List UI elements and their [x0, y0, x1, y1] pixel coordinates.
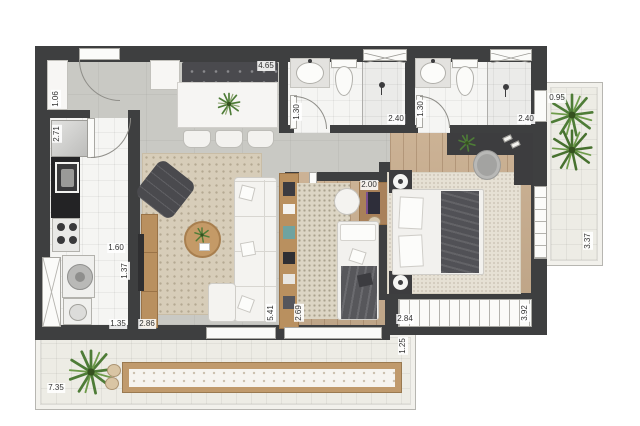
dim-living-depth: 5.41: [266, 304, 276, 322]
washer-door: [75, 272, 85, 282]
balcony-plant-icon: [551, 128, 593, 172]
closet-x-icon: [43, 258, 60, 326]
sofa-pillow: [240, 241, 256, 257]
office-bed: [337, 221, 379, 320]
burner: [57, 236, 65, 244]
office-bed-cushion: [348, 248, 366, 265]
dim-bedroom-window: 2.84: [396, 314, 414, 324]
dim-balcony-bottom-depth: 1.25: [398, 337, 408, 355]
dim-bath1-door: 1.30: [292, 103, 302, 121]
bath2-sink: [420, 62, 446, 84]
washing-machine: [62, 255, 95, 298]
bedroom-balcony-sliding-door: [534, 186, 547, 259]
wall-kitchen-living: [128, 110, 140, 325]
wall-bath-bottom-3: [450, 125, 547, 133]
dim-kitchen-width: 1.60: [107, 243, 125, 253]
living-sliding-door: [206, 327, 276, 339]
dim-kitchen-depth: 1.37: [120, 262, 130, 280]
books: [283, 274, 295, 284]
office-sliding-door: [284, 327, 382, 339]
laundry-sink: [63, 298, 92, 325]
dim-dining-width: 4.65: [257, 61, 275, 71]
dim-office-width: 2.69: [294, 304, 304, 322]
dim-bath2-shower: 2.40: [517, 114, 535, 124]
dining-chair: [215, 130, 243, 148]
balcony-bench: [122, 362, 402, 393]
bath2-window: [490, 49, 532, 61]
dim-living-width: 2.86: [138, 319, 156, 329]
burner: [57, 223, 65, 231]
wall-bath-bottom-2: [330, 125, 418, 133]
dining-plant-icon: [217, 92, 241, 116]
balcony-right-window: [534, 90, 547, 122]
books: [283, 252, 295, 264]
office-monitor: [366, 192, 380, 214]
sink-basin: [61, 169, 74, 187]
kitchen-sink: [55, 162, 79, 193]
wall-bath1-left: [279, 46, 288, 133]
entry-door: [79, 48, 120, 60]
bed-pillow: [398, 196, 424, 229]
dim-balcony-right-width: 0.95: [548, 93, 566, 103]
coffee-table-plant-icon: [194, 227, 210, 243]
dim-bath2-door: 1.30: [416, 100, 426, 118]
window-x-icon: [364, 53, 406, 63]
tv: [138, 234, 144, 291]
lamp-center: [398, 280, 403, 285]
balcony-bench-cushion: [129, 369, 395, 387]
bedroom-chair: [473, 150, 501, 180]
burner: [69, 236, 77, 244]
bath1-sink: [296, 62, 324, 84]
books: [283, 182, 295, 196]
bath2-shower-head-icon: [503, 84, 509, 90]
dim-bedroom-depth: 3.92: [520, 304, 530, 322]
sofa-back-line: [264, 180, 265, 321]
stove: [52, 218, 80, 252]
balcony-stool: [107, 364, 121, 377]
bed-runner: [441, 191, 479, 273]
bed-pillow: [398, 234, 424, 267]
books: [283, 226, 295, 239]
dim-balcony-bottom-width: 7.35: [47, 383, 65, 393]
office-chair: [334, 188, 360, 215]
floor-plan: 1.06 2.71 4.65 1.30 2.40 1.30 2.40 0.95 …: [0, 0, 640, 426]
bath1-window: [363, 49, 407, 61]
dim-balcony-right-depth: 3.37: [583, 232, 593, 250]
bed: [392, 189, 484, 275]
dim-kitchen-fridge: 2.71: [52, 125, 62, 143]
dining-chair: [183, 130, 211, 148]
lamp-center: [398, 179, 403, 184]
dim-foyer-closet: 1.06: [51, 90, 61, 108]
window-x-icon: [491, 53, 531, 63]
bedroom-desk-plant-icon: [458, 134, 476, 152]
laundry-closet-door: [42, 257, 61, 327]
books: [283, 204, 295, 214]
laundry-basin: [69, 304, 87, 321]
balcony-stool: [105, 377, 119, 390]
burner: [69, 223, 77, 231]
shelf-line: [142, 291, 157, 292]
dining-chair: [247, 130, 274, 148]
dim-laundry-width: 1.35: [109, 319, 127, 329]
bath1-shower-head-icon: [379, 82, 385, 88]
wall-foyer-kitchen: [35, 110, 90, 118]
shelf-line: [142, 252, 157, 253]
dim-bath1-shower: 2.40: [387, 114, 405, 124]
office-bed-pillow: [340, 224, 376, 241]
sofa-chaise: [208, 283, 236, 322]
bath2-faucet: [431, 59, 435, 63]
bath1-shower-arm: [381, 87, 382, 95]
bath2-shower-arm: [505, 89, 506, 97]
dining-sideboard: [150, 60, 180, 90]
bedroom-window: [398, 299, 532, 327]
bath1-faucet: [308, 59, 312, 63]
coffee-table-tray: [199, 243, 210, 251]
dim-office-desk: 2.00: [360, 180, 378, 190]
